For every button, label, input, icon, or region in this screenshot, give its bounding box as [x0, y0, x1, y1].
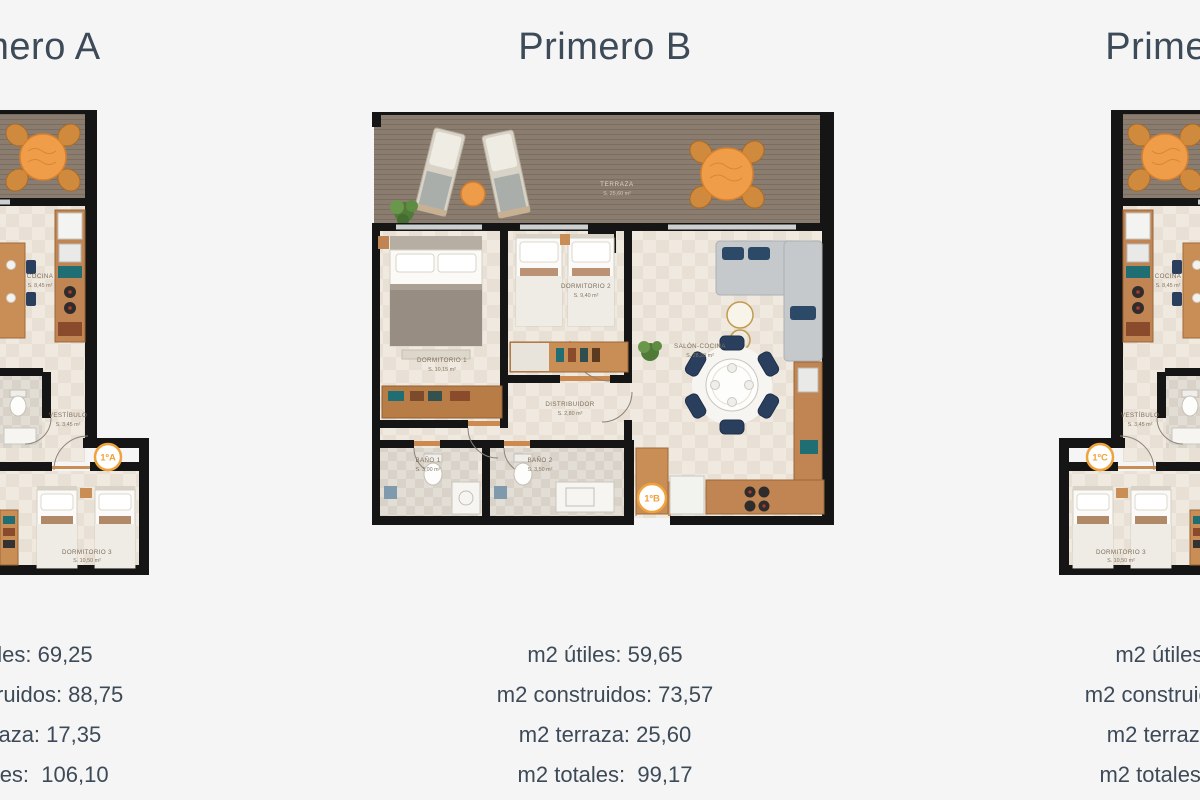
floorplan-image-primero-c[interactable]: TERRAZA S. 17,35 m² COCINA S. 8,45 m² VE…: [1028, 110, 1200, 580]
stat-line: m2 construidos: 73,57: [275, 675, 935, 715]
room-area-cocina: S. 8,45 m²: [28, 283, 53, 289]
unit-badge: 1ºC: [1092, 453, 1108, 464]
vanity-icon: [556, 482, 614, 512]
side-table-icon: [461, 182, 485, 206]
stat-line: m2 terraza: 17,35: [863, 715, 1200, 755]
bath-mat-icon: [384, 486, 397, 499]
room-area-vestibulo: S. 3,45 m²: [56, 422, 81, 428]
room-area-vestibulo: S. 3,45 m²: [1128, 422, 1153, 428]
plan-title: Primero C: [863, 26, 1200, 69]
room-area-bano1: S. 3,00 m²: [416, 467, 441, 473]
room-area-salon: S. 28,20 m²: [686, 353, 714, 359]
floorplan-carousel: Primero A TERRAZA S. 17,35 m² COCINA S. …: [0, 0, 1200, 800]
plan-stats: m2 útiles: 59,65 m2 construidos: 73,57 m…: [275, 635, 935, 795]
room-area-dormitorio: S. 10,50 m²: [1107, 558, 1135, 564]
plan-card-primero-c: Primero C TERRAZA S. 17,35 m² COCINA S. …: [863, 0, 1200, 800]
room-area-distribuidor: S. 2,80 m²: [558, 411, 583, 417]
plan-title: Primero B: [275, 26, 935, 69]
floorplan-image-primero-a[interactable]: TERRAZA S. 17,35 m² COCINA S. 8,45 m² VE…: [0, 110, 180, 580]
room-label-cocina: COCINA: [1155, 273, 1182, 280]
stat-line: m2 construidos: 88,75: [863, 675, 1200, 715]
room-label-bano1: BAÑO 1: [415, 457, 440, 464]
room-label-cocina: COCINA: [27, 273, 54, 280]
wardrobe-icon: [382, 386, 502, 418]
floorplan-image-primero-b[interactable]: TERRAZA S. 25,60 m²: [370, 110, 840, 530]
unit-badge: 1ºA: [100, 453, 116, 464]
coffee-table-icon: [727, 302, 753, 328]
room-label-dormitorio2: DORMITORIO 2: [561, 283, 611, 290]
room-label-dormitorio1: DORMITORIO 1: [417, 357, 467, 364]
room-label-dormitorio: DORMITORIO 3: [62, 549, 112, 556]
room-area-bano2: S. 3,50 m²: [528, 467, 553, 473]
room-label-vestibulo: VESTÍBULO: [1121, 412, 1159, 419]
unit-badge: 1ºB: [644, 494, 660, 505]
room-label-salon: SALÓN-COCINA: [674, 343, 726, 350]
room-label-distribuidor: DISTRIBUIDOR: [545, 401, 594, 408]
dresser-icon: [510, 342, 628, 372]
room-area-cocina: S. 8,45 m²: [1156, 283, 1181, 289]
plan-stats: m2 útiles: 69,25 m2 construidos: 88,75 m…: [863, 635, 1200, 795]
stat-line: m2 totales: 99,17: [275, 755, 935, 795]
room-label-bano2: BAÑO 2: [527, 457, 552, 464]
vanity-icon: [452, 482, 480, 514]
double-bed-icon: [378, 236, 482, 359]
stat-line: m2 útiles: 59,65: [275, 635, 935, 675]
bath-mat-icon: [494, 486, 507, 499]
room-label-vestibulo: VESTÍBULO: [49, 412, 87, 419]
room-area-dormitorio1: S. 10,15 m²: [428, 367, 456, 373]
room-area-dormitorio2: S. 9,40 m²: [574, 293, 599, 299]
stat-line: m2 útiles: 69,25: [863, 635, 1200, 675]
room-label-dormitorio: DORMITORIO 3: [1096, 549, 1146, 556]
room-label-terraza: TERRAZA: [600, 181, 634, 188]
stat-line: m2 totales: 106,10: [863, 755, 1200, 795]
room-area-terraza: S. 25,60 m²: [603, 191, 631, 197]
plan-card-primero-b: Primero B: [275, 0, 935, 800]
stat-line: m2 terraza: 25,60: [275, 715, 935, 755]
room-area-dormitorio: S. 10,50 m²: [73, 558, 101, 564]
